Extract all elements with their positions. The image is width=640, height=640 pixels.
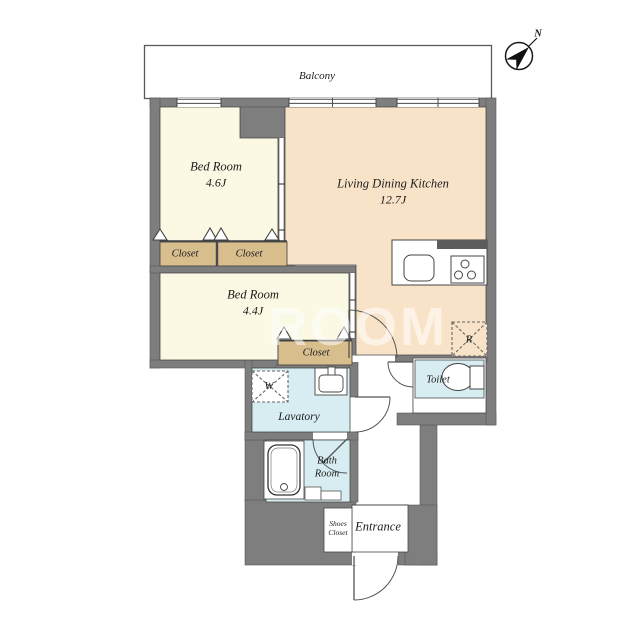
toilet-label: Toilet — [426, 374, 450, 385]
ldk-window-1 — [289, 98, 376, 107]
floor-plan: ROOM Balcony N Bed Room 4.6J Living Dini… — [0, 0, 640, 640]
bedroom2-size: 4.4J — [243, 305, 263, 318]
bath-label-line1: Bath — [317, 455, 337, 466]
washer-label: W — [264, 381, 273, 393]
closet2-label: Closet — [236, 248, 263, 259]
bath-label-line2: Room — [315, 468, 340, 479]
bedroom1-name: Bed Room — [190, 160, 242, 173]
closet1-label: Closet — [172, 248, 199, 259]
balcony-label: Balcony — [299, 71, 335, 83]
range-hood — [437, 240, 487, 249]
floor-plan-drawing — [0, 0, 640, 640]
shoes-closet-label-line1: Shoes — [329, 520, 347, 528]
ldk-name: Living Dining Kitchen — [337, 177, 449, 190]
refrigerator-label: R — [466, 334, 472, 345]
lavatory-label: Lavatory — [278, 411, 320, 423]
bedroom2-name: Bed Room — [227, 288, 279, 301]
shoes-closet-label-line2: Closet — [328, 529, 347, 537]
closet3-label: Closet — [303, 347, 330, 358]
kitchen-counter — [392, 240, 487, 285]
entrance-label: Entrance — [355, 520, 401, 533]
compass-north-label: N — [534, 28, 542, 39]
bedroom1-ldk-partition — [278, 138, 285, 241]
washbasin-icon — [315, 367, 347, 395]
bedroom2-ldk-partition — [349, 273, 356, 338]
bathtub-icon — [264, 441, 304, 499]
ldk-size: 12.7J — [380, 194, 406, 207]
bedroom1-size: 4.6J — [206, 177, 226, 190]
stove — [451, 256, 484, 283]
toilet-door — [388, 362, 413, 387]
lavatory-door — [355, 397, 390, 432]
compass-icon — [506, 38, 538, 70]
ldk-window-2 — [397, 98, 479, 107]
bedroom1-window — [177, 98, 221, 107]
kitchen-sink — [404, 255, 434, 281]
